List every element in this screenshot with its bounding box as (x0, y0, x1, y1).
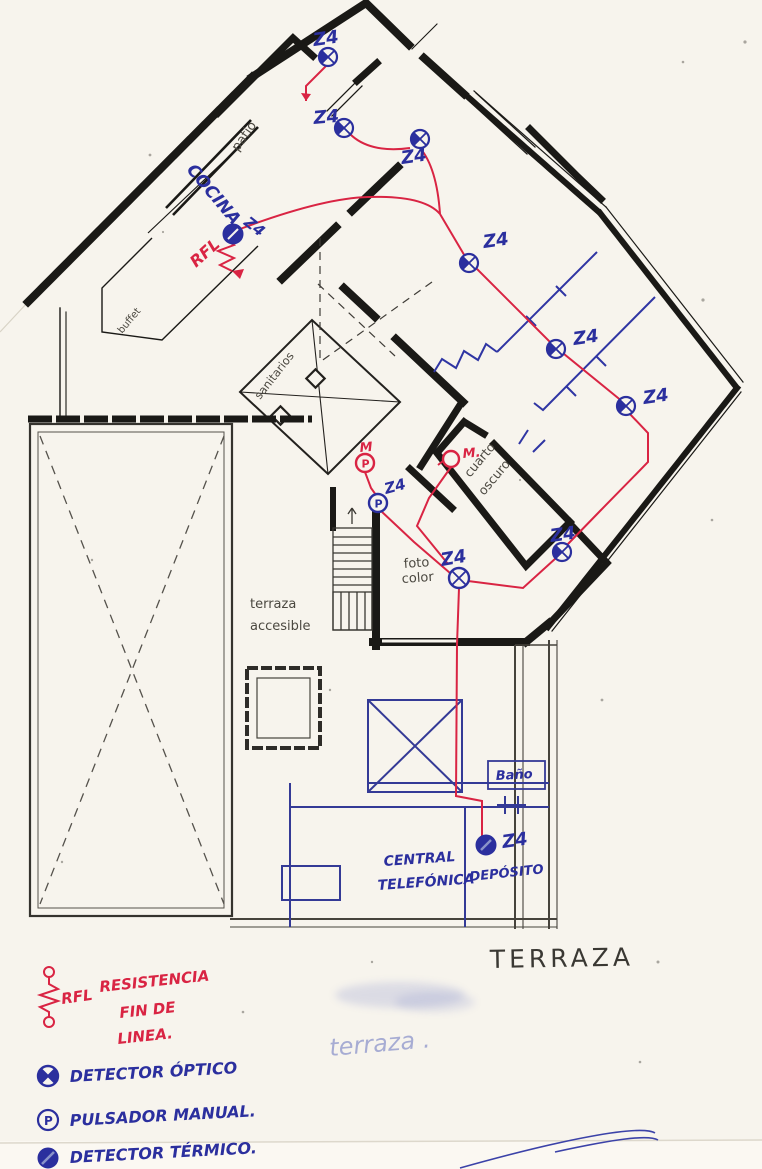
room-label-terraza-accesible-1: terraza (250, 597, 296, 612)
optical-detector-icon (319, 48, 337, 66)
zone-label: Z4 (571, 326, 600, 350)
legend-pulsador-letter: P (44, 1114, 53, 1128)
optical-detector-icon (460, 254, 478, 272)
room-label-bano: Baño (495, 767, 533, 784)
thermal-detector-icon (476, 835, 496, 855)
legend-optical-icon (38, 1066, 58, 1086)
legend-thermal-icon (38, 1148, 58, 1168)
pulsador-letter: P (375, 498, 383, 511)
ink-smudge (395, 992, 475, 1012)
zone-label: Z4 (312, 106, 340, 129)
zone-label: Z4 (481, 229, 510, 253)
manual-m-label: M (359, 440, 373, 456)
thermal-detector-icon (223, 224, 243, 244)
scanned-floor-plan-page: P P Z4 Z4 Z4 Z4 Z4 Z4 Z4 Z4 Z4 Z4 Z4 M M… (0, 0, 762, 1169)
zone-label: Z4 (641, 385, 670, 409)
zone-label: Z4 (500, 829, 529, 853)
optical-detector-icon (449, 568, 469, 588)
room-label-color: color (401, 570, 435, 587)
zone-label: Z4 (548, 523, 577, 547)
zone-label: Z4 (311, 27, 340, 51)
floor-plan-drawing: P P Z4 Z4 Z4 Z4 Z4 Z4 Z4 Z4 Z4 Z4 Z4 M M… (0, 0, 762, 1169)
room-label-terraza-accesible-2: accesible (250, 619, 311, 634)
pulsador-letter: P (362, 458, 370, 471)
terraza-title: TERRAZA (489, 942, 635, 974)
optical-detector-icon (547, 340, 565, 358)
zone-label: Z4 (399, 145, 428, 169)
optical-detector-icon (617, 397, 635, 415)
